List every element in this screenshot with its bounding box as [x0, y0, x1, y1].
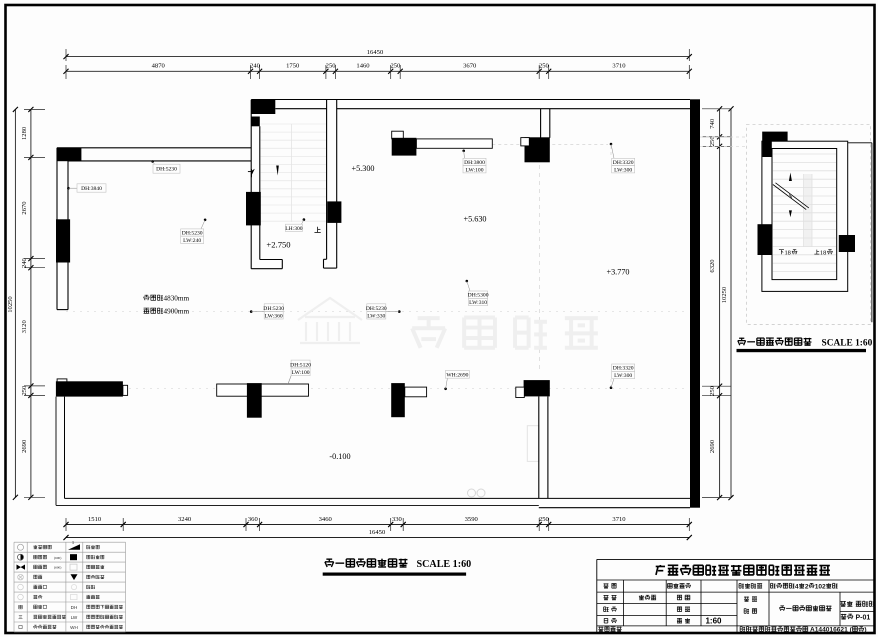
svg-text:250: 250: [539, 516, 550, 523]
svg-text:-0.100: -0.100: [329, 452, 350, 461]
svg-text:LW:100: LW:100: [465, 167, 483, 173]
svg-text:DH:3800: DH:3800: [464, 160, 485, 166]
svg-text:DH:5230: DH:5230: [182, 231, 203, 237]
svg-text:240: 240: [250, 63, 261, 70]
svg-text:P-01: P-01: [854, 614, 871, 621]
svg-text:3460: 3460: [319, 516, 333, 523]
svg-text:LW:300: LW:300: [614, 167, 632, 173]
svg-text:DH:5230: DH:5230: [366, 306, 387, 312]
svg-text:LW:330: LW:330: [367, 313, 385, 319]
svg-text:+3.770: +3.770: [606, 268, 629, 277]
svg-text:10250: 10250: [721, 286, 728, 303]
svg-text:+5.630: +5.630: [463, 215, 486, 224]
svg-text:SCALE 1:60: SCALE 1:60: [417, 559, 472, 570]
svg-text:240: 240: [21, 257, 28, 268]
svg-text:250: 250: [326, 63, 337, 70]
svg-text:330: 330: [392, 516, 403, 523]
svg-text:3120: 3120: [21, 320, 28, 334]
svg-text:360: 360: [248, 516, 259, 523]
svg-text:DH:5230: DH:5230: [156, 167, 177, 173]
svg-text:1:60: 1:60: [705, 616, 722, 625]
svg-text:18: 18: [820, 249, 826, 256]
svg-text:3710: 3710: [612, 63, 626, 70]
svg-text:250: 250: [709, 385, 716, 396]
svg-text:1: 1: [72, 540, 74, 545]
svg-text:DH:3320: DH:3320: [613, 160, 634, 166]
svg-text:LW: LW: [71, 615, 78, 620]
svg-text:1750: 1750: [286, 63, 300, 70]
svg-text:1510: 1510: [88, 516, 102, 523]
svg-text:3670: 3670: [463, 63, 477, 70]
svg-text:4870: 4870: [152, 63, 166, 70]
svg-text:16450: 16450: [369, 529, 386, 536]
svg-text:LW:360: LW:360: [265, 313, 283, 319]
svg-text:2670: 2670: [21, 201, 28, 215]
svg-text:A144016621 (: A144016621 (: [808, 627, 852, 634]
svg-text:DH:5120: DH:5120: [290, 362, 311, 368]
svg-text:DH:3840: DH:3840: [81, 186, 102, 192]
svg-text:250: 250: [21, 385, 28, 396]
svg-text:SCALE 1:60: SCALE 1:60: [822, 338, 873, 348]
svg-text:3590: 3590: [465, 516, 479, 523]
svg-text:1280: 1280: [21, 126, 28, 140]
svg-text:+5.300: +5.300: [351, 164, 374, 173]
svg-text:LH:300: LH:300: [285, 226, 303, 232]
svg-text:LW:240: LW:240: [183, 238, 201, 244]
svg-text:4: 4: [795, 583, 799, 590]
svg-text:102: 102: [815, 583, 826, 590]
svg-text:16450: 16450: [367, 49, 384, 56]
svg-text:2: 2: [805, 583, 809, 590]
svg-text:10250: 10250: [7, 296, 14, 313]
svg-text:DH:5300: DH:5300: [468, 293, 489, 299]
svg-text:): ): [864, 627, 866, 634]
svg-text:LW:310: LW:310: [469, 300, 487, 306]
svg-text:DH:5230: DH:5230: [263, 306, 284, 312]
svg-text:DH:3320: DH:3320: [613, 366, 634, 372]
svg-text:250: 250: [539, 63, 550, 70]
svg-text:WH: WH: [70, 625, 78, 630]
svg-text:3710: 3710: [612, 516, 626, 523]
svg-text:LW:100: LW:100: [292, 370, 310, 376]
svg-text:250: 250: [390, 63, 401, 70]
svg-text:1460: 1460: [356, 63, 370, 70]
svg-text:LW:300: LW:300: [614, 373, 632, 379]
svg-text:(600): (600): [54, 566, 61, 570]
svg-text:3240: 3240: [178, 516, 192, 523]
svg-text:18: 18: [784, 249, 790, 256]
svg-text:DH: DH: [71, 605, 78, 610]
svg-text:2690: 2690: [709, 439, 716, 453]
svg-text:4830mm: 4830mm: [164, 295, 190, 303]
svg-text:+2.750: +2.750: [266, 239, 290, 249]
svg-text:4900mm: 4900mm: [164, 308, 190, 316]
svg-text:(600): (600): [54, 556, 61, 560]
svg-text:740: 740: [709, 118, 716, 129]
svg-text:6320: 6320: [709, 259, 716, 273]
svg-text:2690: 2690: [21, 439, 28, 453]
svg-text:WH:2690: WH:2690: [446, 372, 468, 378]
